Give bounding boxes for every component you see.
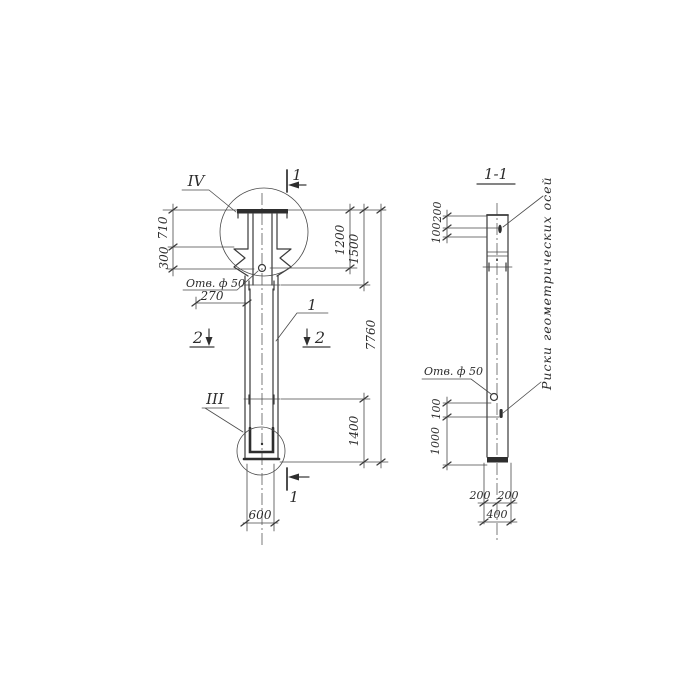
dim-1400-label: 1400 (347, 415, 361, 446)
dim-100-mid-label: 100 (430, 399, 443, 420)
right-dimensions: 1200 1500 1400 7760 (270, 204, 388, 468)
dim-200-right-label: 200 (497, 489, 519, 502)
section-title: 1-1 (477, 165, 515, 184)
column-drawing: 710 300 Отв. ф 50 270 1200 1500 1400 776 (0, 0, 700, 700)
section2-mark-right: 2 (303, 328, 330, 347)
detail-iv-label: IV (187, 172, 207, 190)
shaft-inner (250, 289, 273, 428)
dim-400-label: 400 (486, 508, 508, 521)
section-bottom-dims: 200 200 400 (469, 463, 519, 525)
dim-600-label: 600 (249, 508, 272, 522)
top-plate (237, 209, 288, 218)
section-view: 1-1 200 100 Отв. ф 50 (422, 165, 554, 540)
detail-label-iv: IV (182, 172, 236, 212)
section1-mark-bottom: 1 (287, 468, 309, 506)
right-bracket (277, 249, 291, 276)
dim-710-label: 710 (156, 216, 170, 239)
section1-top-label: 1 (292, 166, 302, 184)
section2-mark-left: 2 (190, 328, 214, 347)
dim-100-top-label: 100 (430, 223, 443, 244)
section-title-label: 1-1 (484, 165, 508, 183)
main-view: 710 300 Отв. ф 50 270 1200 1500 1400 776 (156, 166, 388, 545)
dim-200-top-label: 200 (431, 202, 444, 224)
axes-note: Риски геометрических осей (503, 176, 554, 413)
hole-section (491, 394, 498, 401)
dim-1200-label: 1200 (333, 224, 347, 255)
section1-mark-top: 1 (287, 166, 306, 192)
section2-left-label: 2 (192, 328, 203, 347)
drawing-sheet: 710 300 Отв. ф 50 270 1200 1500 1400 776 (0, 0, 700, 700)
axes-note-label: Риски геометрических осей (539, 176, 554, 391)
axis-mark-bottom (500, 409, 503, 418)
detail-iii-label: III (205, 390, 225, 408)
dim-1500-label: 1500 (347, 233, 361, 264)
dim-270-label: 270 (200, 289, 224, 303)
dim-200-left-label: 200 (469, 489, 491, 502)
hole-callout-section: Отв. ф 50 (422, 365, 491, 394)
section2-right-label: 2 (314, 328, 325, 347)
upper-shaft-inner (253, 214, 272, 285)
dim-270: 270 (192, 289, 251, 309)
dim-7760-label: 7760 (364, 319, 378, 350)
section1-bottom-label: 1 (289, 488, 299, 506)
upper-shaft-outer (248, 214, 277, 249)
section-top-dims: 200 100 (430, 202, 498, 244)
detail-label-iii: III (202, 390, 243, 432)
hole-label-section: Отв. ф 50 (424, 365, 483, 378)
dim-300-label: 300 (157, 246, 171, 269)
part-leader-label: 1 (307, 296, 317, 314)
left-dimensions: 710 300 (156, 204, 254, 276)
detail-circle-top (220, 188, 308, 276)
bottom-socket (244, 428, 279, 459)
section-column (483, 215, 512, 463)
dim-1000-label: 1000 (429, 427, 442, 455)
hole-callout-main: Отв. ф 50 (183, 271, 258, 290)
axis-mark-top (498, 225, 502, 233)
